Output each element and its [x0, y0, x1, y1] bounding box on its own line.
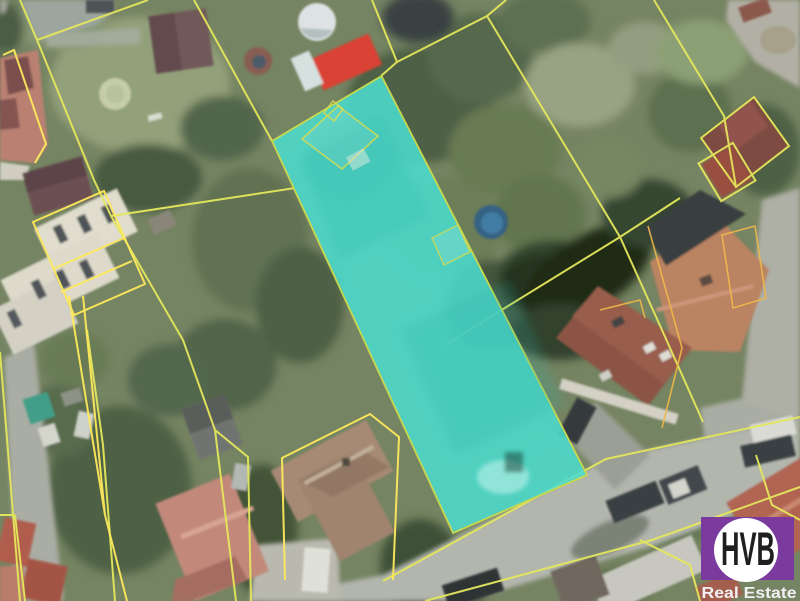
- svg-text:Real Estate: Real Estate: [702, 585, 797, 601]
- svg-text:HVB: HVB: [721, 522, 775, 575]
